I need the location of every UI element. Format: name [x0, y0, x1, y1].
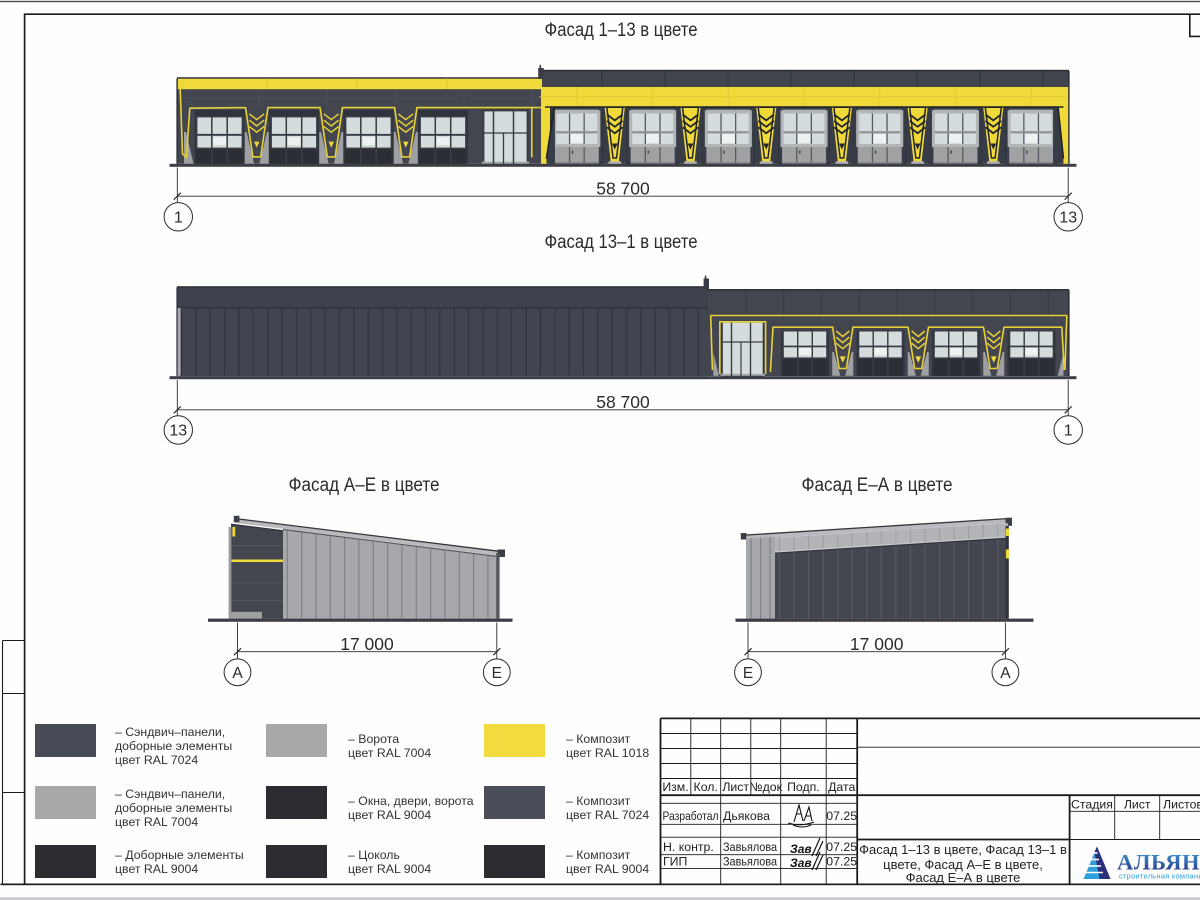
svg-text:17 000: 17 000: [340, 634, 394, 654]
svg-text:Зав: Зав: [790, 856, 812, 870]
svg-text:цвет RAL 7004: цвет RAL 7004: [115, 815, 198, 829]
svg-text:доборные элементы: доборные элементы: [115, 739, 232, 753]
svg-text:Дьякова: Дьякова: [723, 809, 770, 823]
svg-text:Е: Е: [743, 665, 753, 682]
svg-text:Изм.: Изм.: [662, 780, 688, 794]
svg-text:Разработал: Разработал: [663, 809, 719, 823]
svg-text:Подп.: Подп.: [787, 780, 820, 794]
svg-text:Фасад А–Е в цвете: Фасад А–Е в цвете: [289, 475, 440, 496]
svg-text:Фасад Е–А в цвете: Фасад Е–А в цвете: [802, 475, 953, 496]
svg-text:Фасад 13–1 в цвете: Фасад 13–1 в цвете: [545, 232, 698, 253]
svg-text:цвет RAL 9004: цвет RAL 9004: [115, 862, 198, 876]
svg-text:цвет RAL 9004: цвет RAL 9004: [348, 808, 431, 822]
svg-text:Завьялова: Завьялова: [723, 840, 777, 854]
svg-text:58 700: 58 700: [596, 392, 650, 412]
svg-text:Завьялова: Завьялова: [723, 855, 777, 869]
svg-text:Е: Е: [492, 665, 502, 682]
svg-text:58 700: 58 700: [596, 178, 650, 198]
svg-text:Лист: Лист: [1124, 798, 1151, 812]
svg-text:Фасад 1–13 в цвете, Фасад 13–1: Фасад 1–13 в цвете, Фасад 13–1 в: [859, 842, 1067, 857]
svg-text:07.25: 07.25: [826, 840, 857, 854]
svg-text:Кол.: Кол.: [694, 780, 718, 794]
svg-text:Н. контр.: Н. контр.: [663, 840, 714, 854]
svg-text:Фасад Е–А в цвете: Фасад Е–А в цвете: [906, 870, 1021, 885]
svg-text:№док: №док: [749, 780, 782, 794]
svg-text:цвет RAL 7024: цвет RAL 7024: [566, 808, 649, 822]
svg-text:цвет RAL 9004: цвет RAL 9004: [348, 862, 431, 876]
svg-text:17 000: 17 000: [850, 634, 904, 654]
svg-text:ГИП: ГИП: [663, 855, 687, 869]
svg-text:Фасад 1–13 в цвете: Фасад 1–13 в цвете: [545, 20, 698, 41]
svg-text:– Цоколь: – Цоколь: [348, 848, 400, 862]
svg-text:цвет RAL 7004: цвет RAL 7004: [348, 746, 431, 760]
svg-text:13: 13: [1059, 209, 1077, 226]
svg-text:13: 13: [169, 423, 187, 440]
svg-text:– Сэндвич–панели,: – Сэндвич–панели,: [115, 725, 225, 739]
svg-text:цвет RAL 1018: цвет RAL 1018: [566, 746, 649, 760]
svg-text:1: 1: [174, 209, 183, 226]
svg-text:А: А: [1000, 665, 1011, 682]
svg-text:цвет RAL 7024: цвет RAL 7024: [115, 753, 198, 767]
svg-text:– Композит: – Композит: [566, 794, 631, 808]
svg-text:Зав: Зав: [790, 842, 812, 856]
svg-text:– Доборные элементы: – Доборные элементы: [115, 848, 244, 862]
svg-text:– Окна, двери, ворота: – Окна, двери, ворота: [348, 794, 474, 808]
svg-text:А: А: [232, 665, 243, 682]
svg-text:Дата: Дата: [828, 780, 855, 794]
svg-text:доборные элементы: доборные элементы: [115, 801, 232, 815]
svg-text:Стадия: Стадия: [1071, 798, 1113, 812]
svg-text:– Композит: – Композит: [566, 848, 631, 862]
svg-text:строительная компания: строительная компания: [1119, 872, 1200, 881]
svg-text:Листов: Листов: [1163, 798, 1200, 812]
svg-text:цвет RAL 9004: цвет RAL 9004: [566, 862, 649, 876]
svg-text:– Композит: – Композит: [566, 732, 631, 746]
svg-text:– Ворота: – Ворота: [348, 732, 399, 746]
svg-text:Лист: Лист: [722, 780, 749, 794]
svg-text:1: 1: [1064, 423, 1073, 440]
svg-text:– Сэндвич–панели,: – Сэндвич–панели,: [115, 787, 225, 801]
svg-text:07.25: 07.25: [826, 855, 857, 869]
svg-text:07.25: 07.25: [826, 809, 857, 823]
